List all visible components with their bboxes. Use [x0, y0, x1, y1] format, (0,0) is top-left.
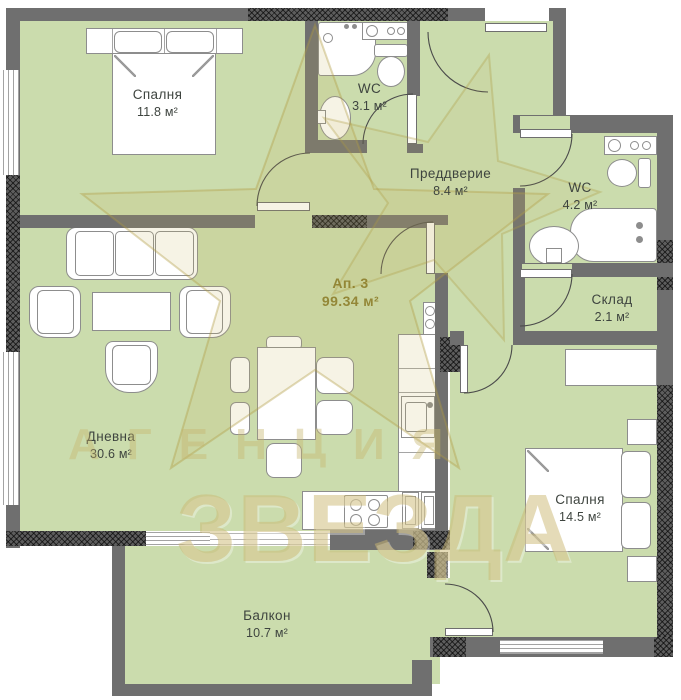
wall-right-upper [553, 8, 566, 115]
bathtub-icon [570, 208, 657, 262]
room-area: 14.5 м² [519, 509, 641, 525]
livingroom-door-leaf [426, 222, 435, 274]
window-bedroom2 [500, 640, 603, 654]
window-living [3, 352, 19, 505]
tub-knob-icon [323, 33, 333, 43]
sink-bowl-icon [366, 25, 378, 37]
floor-plan: Спалня 11.8 м² WC 3.1 м² Преддверие 8.4 … [0, 0, 681, 700]
dining-chair [266, 443, 302, 478]
room-label-bedroom2: Спалня 14.5 м² [519, 491, 641, 525]
room-name: Спалня [95, 86, 220, 104]
wall-wc1-bottom [305, 140, 367, 153]
sink-bowl-icon [630, 141, 639, 150]
wall-bedroom2-top [513, 331, 673, 345]
dining-chair [230, 402, 250, 435]
sofa-cushion [115, 231, 154, 276]
sofa-cushion [75, 231, 114, 276]
sofa-cushion [155, 231, 194, 276]
nightstand [627, 419, 657, 445]
faucet-dot [636, 222, 643, 229]
blanket-fold [192, 55, 214, 77]
sink-bowl-icon [642, 141, 651, 150]
room-area: 2.1 м² [564, 309, 660, 325]
room-area: 3.1 м² [322, 98, 417, 114]
burner-icon [368, 499, 380, 511]
wall-living-bottom-hatched [6, 531, 146, 546]
faucet-dot [352, 24, 357, 29]
burner-icon [350, 499, 362, 511]
dining-chair [316, 357, 354, 394]
wall-corridor-stub [435, 215, 448, 225]
wall-hatched-pier [312, 215, 367, 228]
room-area: 10.7 м² [203, 625, 331, 641]
wardrobe [565, 349, 657, 386]
wall-bedroom2-top [450, 331, 464, 345]
room-name: WC [534, 179, 626, 197]
room-name: Балкон [203, 607, 331, 625]
room-label-wc2: WC 4.2 м² [534, 179, 626, 213]
room-name: WC [322, 80, 417, 98]
kitchen-sink-basin [405, 402, 427, 432]
boiler-dial [425, 306, 435, 316]
armchair-cushion [186, 290, 223, 334]
balcony-wall-right [412, 660, 432, 696]
room-area: 8.4 м² [378, 183, 523, 199]
dining-chair [230, 357, 250, 393]
room-label-bedroom1: Спалня 11.8 м² [95, 86, 220, 120]
appliance-inner [405, 496, 416, 525]
floor-corridor [448, 216, 520, 345]
room-label-living: Дневна 30.6 м² [49, 428, 173, 462]
burner-icon [350, 514, 362, 526]
blanket-fold [527, 528, 549, 550]
room-label-balcony: Балкон 10.7 м² [203, 607, 331, 641]
pillow [114, 31, 162, 53]
storage-door-leaf [520, 269, 572, 278]
burner-icon [368, 514, 380, 526]
sink-bowl-icon [608, 139, 621, 152]
appliance-inner [424, 496, 434, 525]
room-label-wc1: WC 3.1 м² [322, 80, 417, 114]
room-name: Склад [564, 291, 660, 309]
counter-divider [399, 368, 437, 369]
shelf-divider [112, 29, 113, 53]
counter-divider [399, 452, 437, 453]
sink-bowl-icon [387, 27, 395, 35]
wall-bedroom1-living [20, 215, 255, 228]
counter-divider [399, 392, 437, 393]
faucet-dot [427, 402, 433, 408]
slider-living-balcony [210, 533, 330, 545]
blanket-fold [114, 55, 136, 77]
balcony-wall-bottom [112, 684, 432, 696]
entrance-doorway [485, 8, 549, 21]
wall-hatched-pier [413, 531, 450, 549]
sink-pedestal [546, 248, 562, 263]
room-name: Преддверие [378, 165, 523, 183]
room-name: Спалня [519, 491, 641, 509]
armchair-cushion [37, 290, 74, 334]
armchair-cushion [112, 345, 151, 385]
blanket-fold [527, 450, 549, 472]
room-area: 30.6 м² [49, 446, 173, 462]
apartment-area: 99.34 м² [288, 292, 413, 310]
balcony-door-pier [427, 552, 448, 578]
wall-hatched-pier [433, 637, 466, 657]
wall-left-hatched [6, 175, 20, 352]
wc2-door-leaf [520, 129, 572, 138]
apartment-number: Ап. 3 [288, 274, 413, 292]
faucet-dot [636, 236, 643, 243]
dining-table [257, 347, 316, 440]
shelf-divider [164, 29, 165, 53]
window-bedroom1 [3, 70, 19, 175]
wall-right-hatched [657, 385, 673, 657]
wall-wc1-stub [407, 144, 423, 153]
bedroom2-door-leaf [460, 345, 468, 393]
coffee-table [92, 292, 171, 331]
toilet-tank [638, 158, 651, 188]
bedroom1-door-leaf [257, 202, 310, 211]
wall-wc1-left [305, 21, 318, 153]
window-living-balcony [146, 532, 210, 545]
room-label-storage: Склад 2.1 м² [564, 291, 660, 325]
dining-chair [316, 400, 353, 435]
room-name: Дневна [49, 428, 173, 446]
wall-hatched-pier [654, 637, 673, 657]
room-area: 11.8 м² [95, 104, 220, 120]
sink-bowl-icon [397, 27, 405, 35]
balcony-door-leaf [445, 628, 493, 636]
boiler-dial [425, 319, 435, 329]
wall-kitchen-corridor [435, 273, 448, 531]
entrance-door-leaf [485, 23, 547, 32]
pillow [166, 31, 214, 53]
balcony-wall-left [112, 546, 125, 686]
faucet-dot [344, 24, 349, 29]
wall-top-hatched [248, 8, 448, 21]
nightstand [627, 556, 657, 582]
shelf-divider [216, 29, 217, 53]
room-label-hallway: Преддверие 8.4 м² [378, 165, 523, 199]
room-area: 4.2 м² [534, 197, 626, 213]
apartment-label: Ап. 3 99.34 м² [288, 274, 413, 310]
